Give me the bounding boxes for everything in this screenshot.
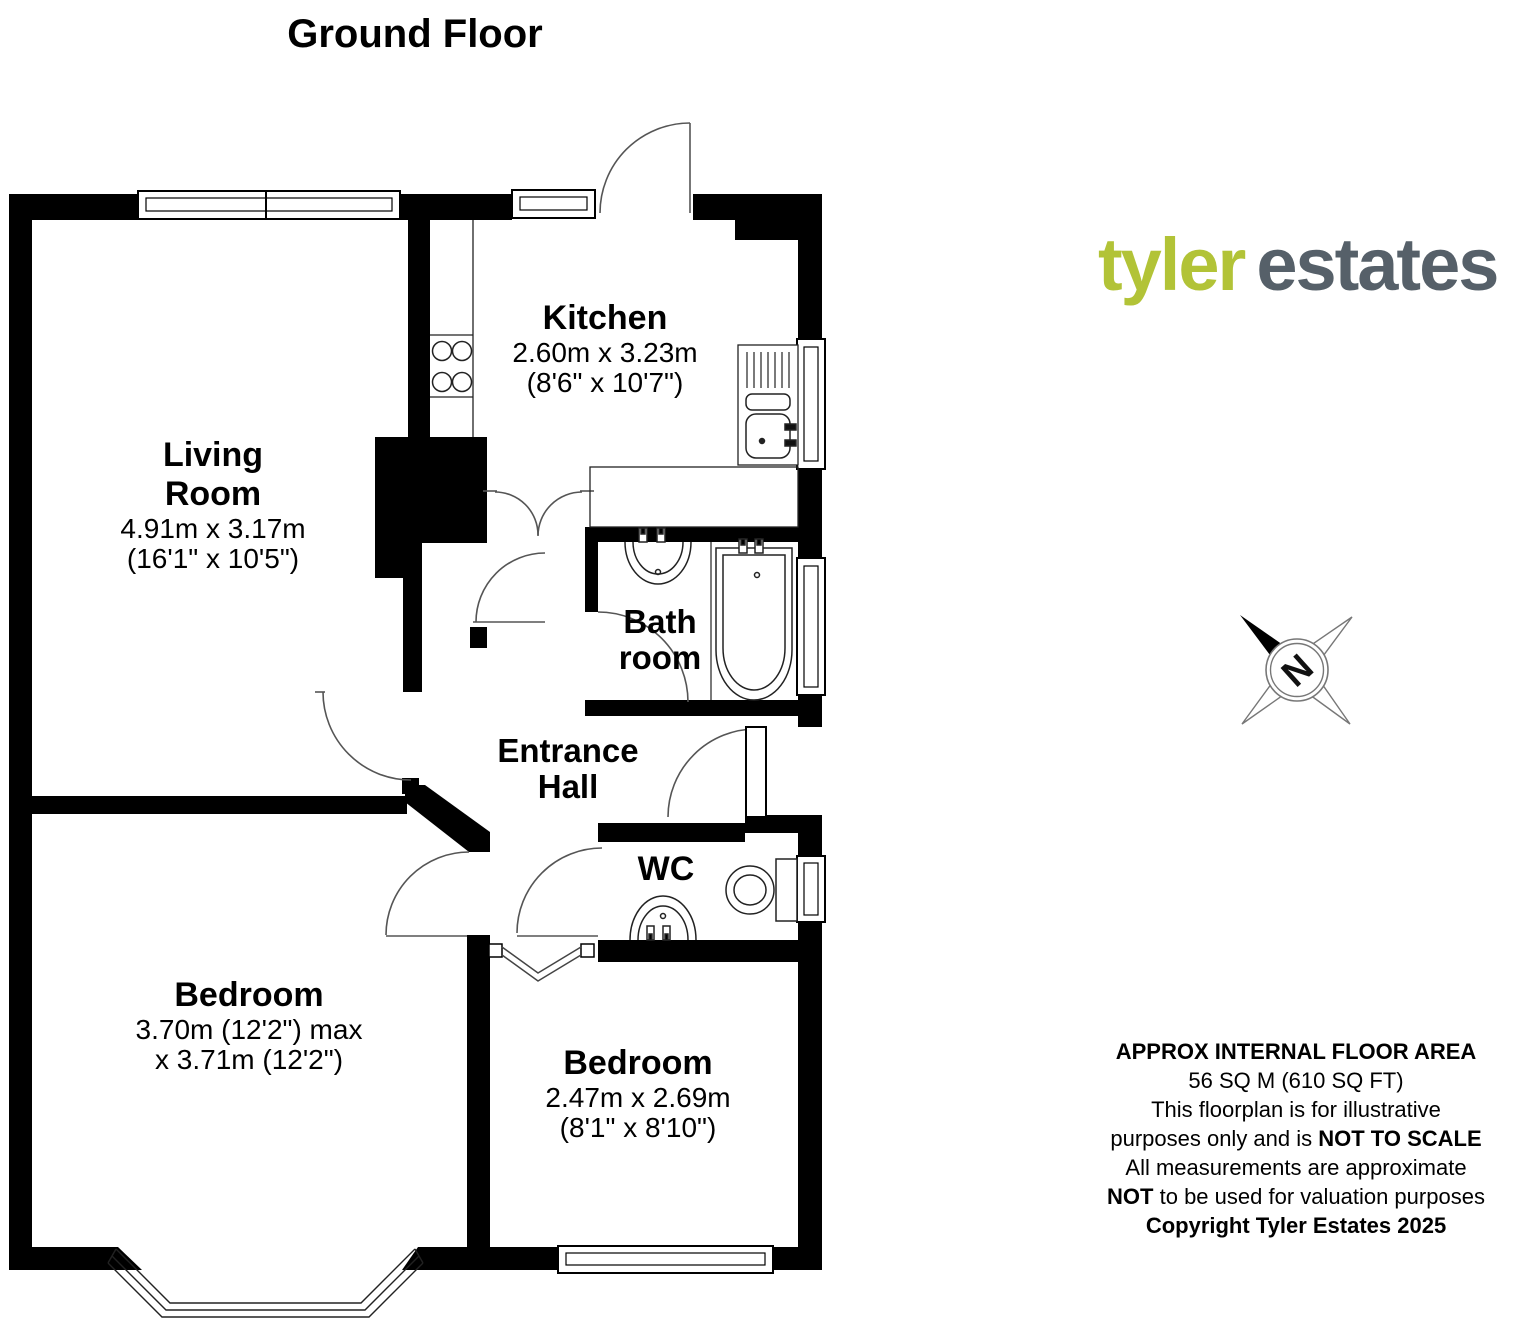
wall-right-3	[798, 693, 822, 727]
wall-living-hall	[403, 543, 422, 692]
door-hall-passage	[473, 553, 545, 622]
disclaimer-line: All measurements are approximate	[1046, 1153, 1526, 1182]
room-label-wc: WC	[616, 850, 716, 889]
room-label-bedroom1: Bedroom 3.70m (12'2") max x 3.71m (12'2"…	[99, 976, 399, 1075]
copyright-line: Copyright Tyler Estates 2025	[1046, 1211, 1526, 1240]
window-kitchen-top	[512, 190, 595, 218]
door-double-kitchen-hall	[483, 491, 594, 536]
wall-bottom-mid	[402, 1247, 558, 1270]
logo-word-tyler: tyler	[1098, 223, 1244, 306]
door-bedroom1	[386, 852, 469, 936]
room-label-bedroom2: Bedroom 2.47m x 2.69m (8'1" x 8'10")	[488, 1044, 788, 1143]
wall-left	[9, 194, 32, 1270]
wall-bottom-right	[773, 1247, 822, 1270]
agency-logo: tylerestates	[1098, 222, 1518, 307]
wall-right-2	[798, 468, 822, 560]
window-bedroom2-bottom	[558, 1246, 773, 1273]
logo-word-estates: estates	[1256, 223, 1497, 306]
floor-area-value: 56 SQ M (610 SQ FT)	[1046, 1066, 1526, 1095]
wall-bathroom-top	[585, 527, 798, 542]
worktop	[590, 467, 798, 527]
wall-bathroom-left	[585, 542, 598, 612]
door-living-room	[315, 692, 411, 780]
disclaimer-heading: APPROX INTERNAL FLOOR AREA	[1046, 1037, 1526, 1066]
room-label-entrance-hall: Entrance Hall	[443, 733, 693, 805]
wall-wc-top	[598, 823, 745, 842]
wall-right-1	[798, 194, 822, 340]
disclaimer-block: APPROX INTERNAL FLOOR AREA 56 SQ M (610 …	[1046, 1037, 1526, 1240]
disclaimer-line: purposes only and is NOT TO SCALE	[1046, 1124, 1526, 1153]
toilet-cistern	[776, 859, 797, 921]
hob-burner	[433, 373, 452, 392]
window-bathroom-right	[797, 558, 825, 695]
wall-top-mid	[400, 194, 512, 220]
wall-wc-bottom	[598, 940, 798, 962]
tap	[785, 424, 796, 430]
wall-chimney-return	[375, 543, 403, 578]
wall-right-5	[798, 920, 822, 1270]
door-kitchen-external	[600, 123, 690, 213]
tap	[785, 440, 796, 446]
wall-kitchen-corner	[735, 220, 798, 240]
window-living-top	[138, 191, 400, 219]
compass-rose: N	[1240, 615, 1352, 724]
room-label-bathroom: Bath room	[560, 604, 760, 676]
room-label-living: Living Room 4.91m x 3.17m (16'1" x 10'5"…	[63, 436, 363, 574]
wall-living-kitchen	[408, 220, 430, 437]
page-title: Ground Floor	[215, 12, 615, 57]
wall-bathroom-bottom	[585, 700, 798, 716]
floorplan-page: N Ground Floor tylerestates Living Room …	[0, 0, 1526, 1328]
window-wc-right	[797, 856, 825, 922]
wall-nook-stub	[470, 627, 487, 648]
disclaimer-line: NOT to be used for valuation purposes	[1046, 1182, 1526, 1211]
hob-burner	[433, 342, 452, 361]
wall-bedroom-divider	[467, 935, 490, 1247]
door-wc-lobby	[517, 848, 602, 936]
chimney-breast	[375, 437, 487, 543]
room-label-kitchen: Kitchen 2.60m x 3.23m (8'6" x 10'7")	[455, 299, 755, 398]
bay-window	[108, 1249, 423, 1317]
window-kitchen-right	[797, 339, 825, 469]
door-bifold-bedroom2	[489, 944, 594, 981]
wall-living-bedroom1	[9, 796, 407, 814]
disclaimer-line: This floorplan is for illustrative	[1046, 1095, 1526, 1124]
